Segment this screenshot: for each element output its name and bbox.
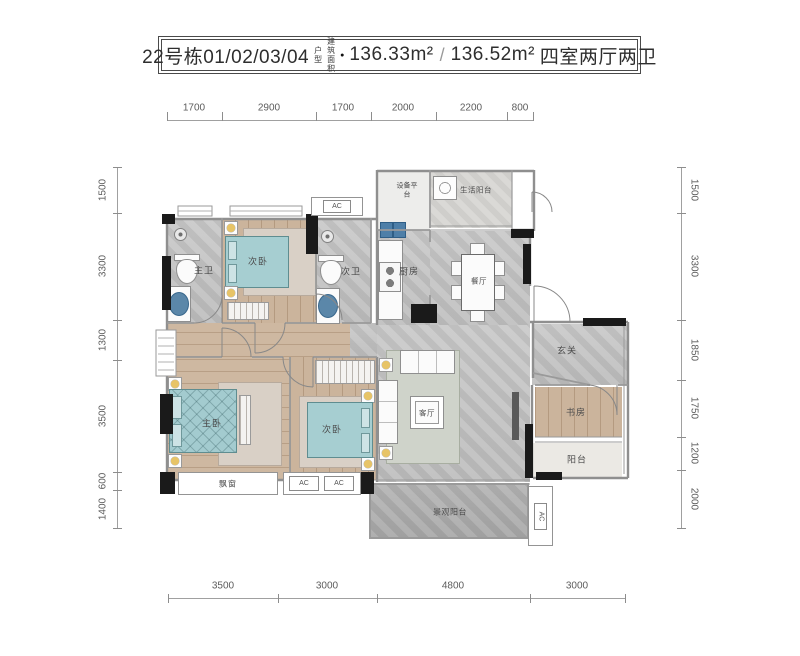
ac-unit-box: AC bbox=[289, 476, 319, 491]
room-label-life-balcony: 生活阳台 bbox=[460, 185, 492, 196]
room-label-master-bedroom: 主卧 bbox=[202, 417, 222, 430]
dim-tick bbox=[113, 360, 122, 361]
dim-tick bbox=[278, 594, 279, 603]
washing-machine-icon bbox=[433, 176, 457, 200]
dim-line-left bbox=[117, 167, 118, 528]
dim-label-top: 1700 bbox=[183, 103, 205, 114]
nightstand-lamp-icon bbox=[224, 221, 238, 235]
room-label-dining: 餐厅 bbox=[471, 276, 487, 287]
dim-tick bbox=[677, 437, 686, 438]
dim-label-left: 1300 bbox=[98, 329, 109, 351]
ac-label: AC bbox=[537, 512, 544, 522]
title-slash: / bbox=[439, 45, 446, 66]
room-label-kitchen: 厨房 bbox=[399, 265, 419, 278]
dim-label-right: 1850 bbox=[689, 339, 700, 361]
dim-label-top: 2200 bbox=[460, 103, 482, 114]
dim-tick bbox=[113, 472, 122, 473]
sink-icon bbox=[169, 292, 189, 316]
pillow-icon bbox=[228, 264, 237, 283]
sink-icon bbox=[318, 294, 338, 318]
bullet-icon: ● bbox=[340, 52, 344, 59]
dim-label-left: 1400 bbox=[98, 498, 109, 520]
dim-tick bbox=[507, 112, 508, 121]
dresser-icon bbox=[227, 302, 269, 320]
window bbox=[230, 206, 302, 216]
dim-tick bbox=[113, 213, 122, 214]
room-label-master-bath: 主卫 bbox=[194, 264, 214, 277]
room-floor-foyer bbox=[532, 324, 628, 385]
dim-tick bbox=[677, 320, 686, 321]
room-floor-equipment-platform bbox=[377, 170, 430, 230]
dim-label-top: 2000 bbox=[392, 103, 414, 114]
shower-icon bbox=[174, 228, 187, 241]
title-box: 22号栋01/02/03/04 户型 建筑面积 ● 136.33m² / 136… bbox=[158, 36, 641, 74]
window bbox=[178, 206, 212, 216]
title-inner: 22号栋01/02/03/04 户型 建筑面积 ● 136.33m² / 136… bbox=[161, 39, 638, 71]
side-table-lamp-icon bbox=[379, 358, 393, 372]
dim-tick bbox=[222, 112, 223, 121]
dim-tick bbox=[677, 470, 686, 471]
dim-label-bottom: 3500 bbox=[212, 581, 234, 592]
door-arc-entry bbox=[534, 286, 570, 322]
nightstand-lamp-icon bbox=[361, 457, 375, 471]
wardrobe-icon bbox=[315, 360, 375, 384]
dim-tick bbox=[168, 594, 169, 603]
dim-label-right: 3300 bbox=[689, 255, 700, 277]
dim-label-right: 1200 bbox=[689, 442, 700, 464]
dim-tick bbox=[113, 490, 122, 491]
dim-label-right: 1750 bbox=[689, 397, 700, 419]
dim-line-right bbox=[681, 167, 682, 528]
tv-icon bbox=[512, 392, 519, 440]
pillow-icon bbox=[172, 396, 182, 419]
dim-tick bbox=[436, 112, 437, 121]
dim-tick bbox=[167, 112, 168, 121]
room-label-second-bedroom-bottom: 次卧 bbox=[322, 423, 342, 436]
dim-label-left: 600 bbox=[98, 473, 109, 490]
ac-label: AC bbox=[334, 480, 344, 487]
room-label-equipment-platform: 设备平台 bbox=[396, 182, 418, 200]
sofa-icon bbox=[400, 350, 455, 374]
dim-tick bbox=[533, 112, 534, 121]
room-label-view-balcony: 景观阳台 bbox=[433, 507, 467, 518]
dim-label-bottom: 3000 bbox=[316, 581, 338, 592]
dim-label-right: 1500 bbox=[689, 179, 700, 201]
bay-window-label: 飘窗 bbox=[219, 479, 237, 490]
nightstand-lamp-icon bbox=[224, 286, 238, 300]
shower-icon bbox=[321, 230, 334, 243]
floorplan-page: { "title": { "building_no": "22号栋01/02/0… bbox=[0, 0, 800, 656]
room-label-living: 客厅 bbox=[419, 408, 435, 419]
dim-tick bbox=[677, 167, 686, 168]
title-building-number: 22号栋01/02/03/04 bbox=[142, 42, 309, 69]
title-layout-desc: 四室两厅两卫 bbox=[540, 42, 657, 69]
kitchen-sink-icon bbox=[380, 222, 406, 238]
dim-tick bbox=[371, 112, 372, 121]
dim-label-left: 3500 bbox=[98, 405, 109, 427]
dim-tick bbox=[677, 380, 686, 381]
pillow-icon bbox=[361, 408, 370, 428]
room-label-foyer: 玄关 bbox=[557, 344, 577, 357]
pillow-icon bbox=[228, 241, 237, 260]
dim-label-top: 800 bbox=[512, 103, 529, 114]
stove-icon bbox=[379, 262, 401, 292]
door-arc-life-balcony bbox=[532, 192, 552, 212]
dim-tick bbox=[316, 112, 317, 121]
ac-unit-box: AC bbox=[324, 476, 354, 491]
room-label-second-bedroom-top: 次卧 bbox=[248, 255, 268, 268]
pillow-icon bbox=[172, 424, 182, 447]
dim-tick bbox=[677, 213, 686, 214]
pillow-icon bbox=[361, 433, 370, 453]
title-area-2: 136.52m² bbox=[451, 44, 535, 66]
nightstand-lamp-icon bbox=[168, 454, 182, 468]
floor-corridor-tile bbox=[350, 323, 377, 357]
title-area-label: 建筑面积 bbox=[327, 37, 335, 74]
room-label-second-bath: 次卫 bbox=[341, 265, 361, 278]
dim-tick bbox=[530, 594, 531, 603]
side-table-lamp-icon bbox=[379, 446, 393, 460]
dim-label-bottom: 3000 bbox=[566, 581, 588, 592]
title-unit-type-label: 户型 bbox=[314, 46, 322, 64]
dim-tick bbox=[113, 528, 122, 529]
dim-tick bbox=[113, 167, 122, 168]
dim-tick bbox=[377, 594, 378, 603]
floor-corridor bbox=[167, 323, 350, 357]
dim-tick bbox=[625, 594, 626, 603]
nightstand-lamp-icon bbox=[361, 389, 375, 403]
dim-line-bottom bbox=[168, 598, 625, 599]
dim-label-top: 1700 bbox=[332, 103, 354, 114]
chair-icon bbox=[470, 310, 485, 322]
sofa-chaise-icon bbox=[378, 380, 398, 444]
dim-label-left: 3300 bbox=[98, 255, 109, 277]
ac-label: AC bbox=[332, 203, 342, 210]
room-label-balcony: 阳台 bbox=[567, 453, 587, 466]
dim-tick bbox=[113, 320, 122, 321]
dim-tick bbox=[677, 528, 686, 529]
dim-label-left: 1500 bbox=[98, 179, 109, 201]
dim-label-bottom: 4800 bbox=[442, 581, 464, 592]
ac-unit-box: AC bbox=[534, 503, 547, 530]
title-area-1: 136.33m² bbox=[349, 44, 433, 66]
ac-unit-box: AC bbox=[323, 200, 351, 213]
ac-label: AC bbox=[299, 480, 309, 487]
room-label-study: 书房 bbox=[566, 406, 586, 419]
bench-icon bbox=[239, 395, 251, 445]
dim-label-right: 2000 bbox=[689, 488, 700, 510]
dim-label-top: 2900 bbox=[258, 103, 280, 114]
